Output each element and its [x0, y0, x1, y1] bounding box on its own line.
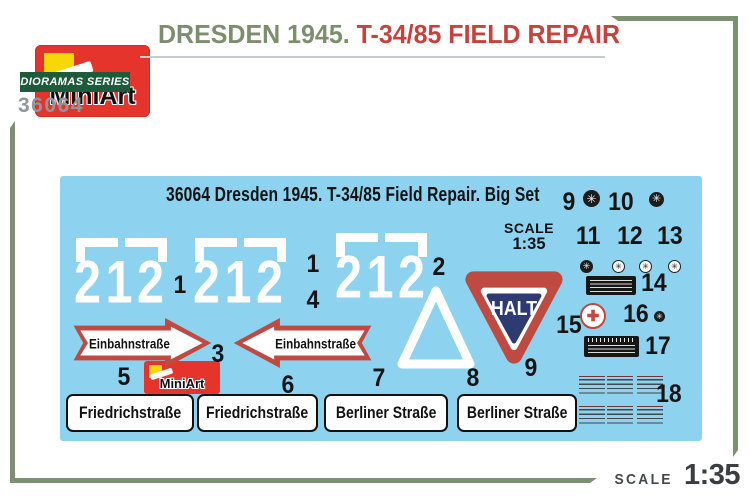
stencil-text-decal: [607, 376, 633, 395]
gauge-glyph: ✳: [583, 262, 591, 271]
gauge-dial-icon: ✳: [580, 260, 593, 273]
frame-line-right: [733, 16, 738, 457]
gauge-glyph: ✳: [652, 194, 661, 205]
street-sign-decal: Friedrichstraße: [197, 394, 318, 432]
decal-sheet: MiniArt 36064 Dresden 1945. T-34/85 Fiel…: [60, 176, 702, 441]
gauge-dial-icon: ✳: [649, 192, 664, 207]
stencil-text-decal: [637, 406, 663, 425]
series-badge: DIORAMAS SERIES: [20, 72, 130, 92]
item-number-marker: 12: [617, 224, 643, 249]
item-number-marker: 13: [657, 224, 683, 249]
footer-scale-label: SCALE: [614, 471, 672, 488]
gauge-dial-icon: ✳: [612, 260, 625, 273]
street-sign-text: Friedrichstraße: [79, 404, 181, 423]
item-number-marker: 1: [174, 273, 187, 298]
halt-sign-text: HALT: [491, 298, 538, 320]
arrow-sign-left-decal: Einbahnstraße: [231, 317, 377, 369]
item-number-marker: 2: [433, 255, 446, 280]
turret-number-decal: 212: [193, 252, 288, 312]
street-sign-text: Friedrichstraße: [206, 404, 308, 423]
item-number-marker: 10: [608, 190, 634, 215]
frame-line-top: [611, 16, 738, 21]
item-number-marker: 18: [656, 382, 682, 407]
street-sign-text: Berliner Straße: [467, 404, 568, 423]
arrow-sign-text: Einbahnstraße: [89, 335, 170, 351]
item-number-marker: 14: [641, 271, 667, 296]
gauge-glyph: ✳: [615, 263, 622, 271]
page-title: DRESDEN 1945. T-34/85 FIELD REPAIR: [158, 21, 620, 50]
gauge-glyph: ✳: [671, 263, 678, 271]
footer-scale-value: 1:35: [684, 459, 740, 492]
sheet-scale: SCALE 1:35: [496, 221, 562, 253]
street-sign-decal: Friedrichstraße: [66, 394, 194, 432]
street-sign-decal: Berliner Straße: [324, 394, 448, 432]
stencil-text-decal: [579, 406, 605, 425]
page-title-subject: T-34/85 FIELD REPAIR: [350, 21, 620, 49]
cross-glyph: ✚: [587, 309, 600, 324]
gauge-dial-icon: ✳: [583, 190, 600, 207]
frame-line-left: [10, 121, 15, 483]
footer-scale: SCALE 1:35: [612, 459, 740, 492]
item-number-marker: 5: [118, 365, 131, 390]
item-number-marker: 1: [307, 252, 320, 277]
page-title-location: DRESDEN 1945.: [158, 21, 350, 49]
frame-line-bottom: [10, 478, 597, 483]
halt-sign-decal: HALT: [464, 265, 564, 369]
gauge-dial-icon: ✳: [654, 311, 665, 322]
street-sign-decal: Berliner Straße: [457, 394, 577, 432]
kit-number: 36064: [18, 94, 84, 118]
red-cross-decal: ✚: [580, 303, 606, 329]
stencil-text-decal: [579, 376, 605, 395]
item-number-marker: 8: [467, 366, 480, 391]
item-number-marker: 4: [307, 288, 320, 313]
item-number-marker: 7: [373, 366, 386, 391]
item-number-marker: 11: [576, 224, 600, 249]
data-plate-decal: [584, 336, 639, 357]
arrow-sign-text: Einbahnstraße: [275, 335, 356, 351]
item-number-marker: 9: [563, 190, 576, 215]
sheet-scale-value: 1:35: [496, 236, 562, 253]
item-number-marker: 16: [623, 302, 649, 327]
title-underline: [140, 56, 605, 58]
gauge-glyph: ✳: [586, 193, 596, 205]
turret-number-decal: 212: [74, 252, 169, 312]
item-number-marker: 3: [212, 342, 225, 367]
item-number-marker: 9: [525, 356, 538, 381]
gauge-dial-icon: ✳: [668, 260, 681, 273]
item-number-marker: 17: [645, 334, 671, 359]
data-plate-decal: [586, 276, 636, 295]
sheet-brand-logo-text: MiniArt: [144, 376, 220, 391]
item-number-marker: 6: [282, 373, 295, 398]
gauge-glyph: ✳: [656, 313, 663, 321]
stencil-text-decal: [607, 406, 633, 425]
item-number-marker: 15: [556, 313, 582, 338]
product-image: MiniArt DIORAMAS SERIES 36064 DRESDEN 19…: [0, 0, 750, 500]
sheet-scale-label: SCALE: [496, 221, 562, 236]
arrow-sign-right-decal: Einbahnstraße: [68, 317, 214, 369]
sheet-title: 36064 Dresden 1945. T-34/85 Field Repair…: [166, 184, 540, 207]
street-sign-text: Berliner Straße: [336, 404, 437, 423]
